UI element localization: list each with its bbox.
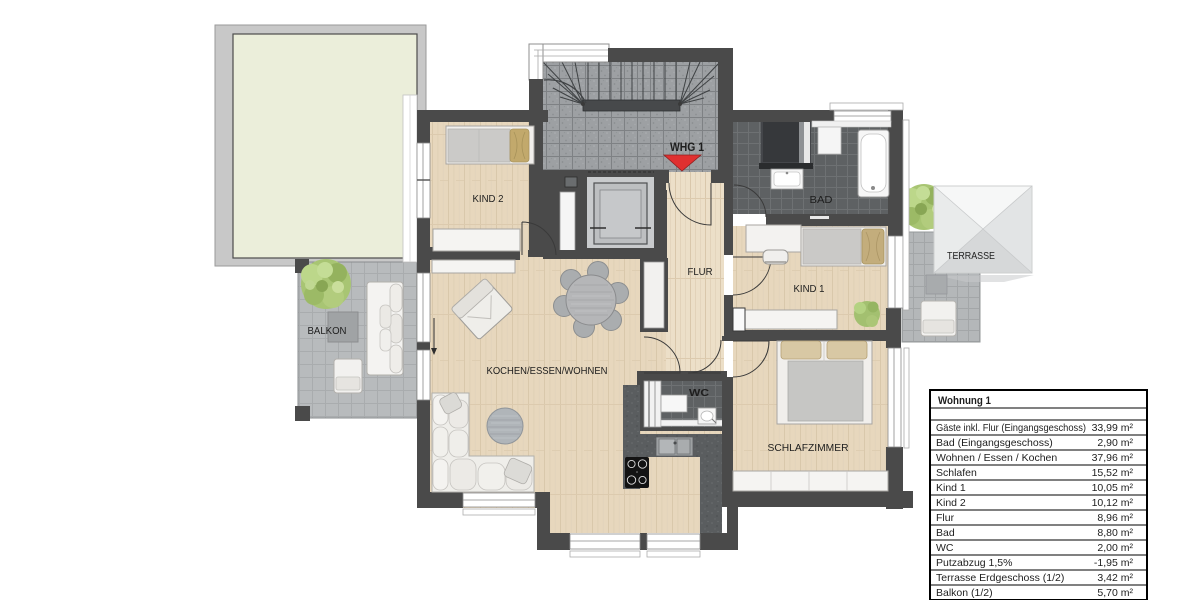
svg-text:Wohnen / Essen / Kochen: Wohnen / Essen / Kochen	[936, 452, 1057, 464]
svg-text:5,70 m²: 5,70 m²	[1097, 587, 1133, 599]
svg-text:Kind 1: Kind 1	[936, 482, 966, 494]
svg-text:33,99 m²: 33,99 m²	[1092, 422, 1134, 434]
svg-text:8,96 m²: 8,96 m²	[1097, 512, 1133, 524]
svg-text:Bad (Eingangsgeschoss): Bad (Eingangsgeschoss)	[936, 437, 1053, 449]
svg-text:37,96 m²: 37,96 m²	[1092, 452, 1134, 464]
svg-text:FLUR: FLUR	[688, 266, 713, 278]
svg-text:BALKON: BALKON	[308, 325, 347, 337]
svg-text:Bad: Bad	[936, 527, 955, 539]
svg-text:KIND 2: KIND 2	[473, 193, 504, 205]
svg-text:Wohnung 1: Wohnung 1	[938, 395, 991, 407]
svg-text:Flur: Flur	[936, 512, 955, 524]
svg-text:10,05 m²: 10,05 m²	[1092, 482, 1134, 494]
svg-text:8,80 m²: 8,80 m²	[1097, 527, 1133, 539]
svg-text:Terrasse Erdgeschoss (1/2): Terrasse Erdgeschoss (1/2)	[936, 572, 1064, 584]
svg-text:TERRASSE: TERRASSE	[947, 251, 995, 262]
svg-text:2,00 m²: 2,00 m²	[1097, 542, 1133, 554]
svg-text:3,42 m²: 3,42 m²	[1097, 572, 1133, 584]
svg-text:-1,95 m²: -1,95 m²	[1094, 557, 1134, 569]
svg-text:Schlafen: Schlafen	[936, 467, 977, 479]
svg-text:2,90 m²: 2,90 m²	[1097, 437, 1133, 449]
svg-text:10,12 m²: 10,12 m²	[1092, 497, 1134, 509]
svg-text:Kind 2: Kind 2	[936, 497, 966, 509]
svg-text:15,52 m²: 15,52 m²	[1092, 467, 1134, 479]
svg-text:BAD: BAD	[810, 194, 833, 206]
svg-text:Gäste inkl. Flur (Eingangsgesc: Gäste inkl. Flur (Eingangsgeschoss)	[936, 422, 1086, 434]
svg-text:WC: WC	[936, 542, 954, 554]
svg-text:WC: WC	[689, 387, 709, 399]
svg-text:Putzabzug 1,5%: Putzabzug 1,5%	[936, 557, 1012, 569]
svg-text:KIND 1: KIND 1	[794, 283, 825, 295]
svg-text:SCHLAFZIMMER: SCHLAFZIMMER	[768, 442, 849, 454]
svg-text:WHG 1: WHG 1	[670, 142, 705, 154]
svg-text:KOCHEN/ESSEN/WOHNEN: KOCHEN/ESSEN/WOHNEN	[487, 365, 608, 377]
svg-text:Balkon (1/2): Balkon (1/2)	[936, 587, 993, 599]
